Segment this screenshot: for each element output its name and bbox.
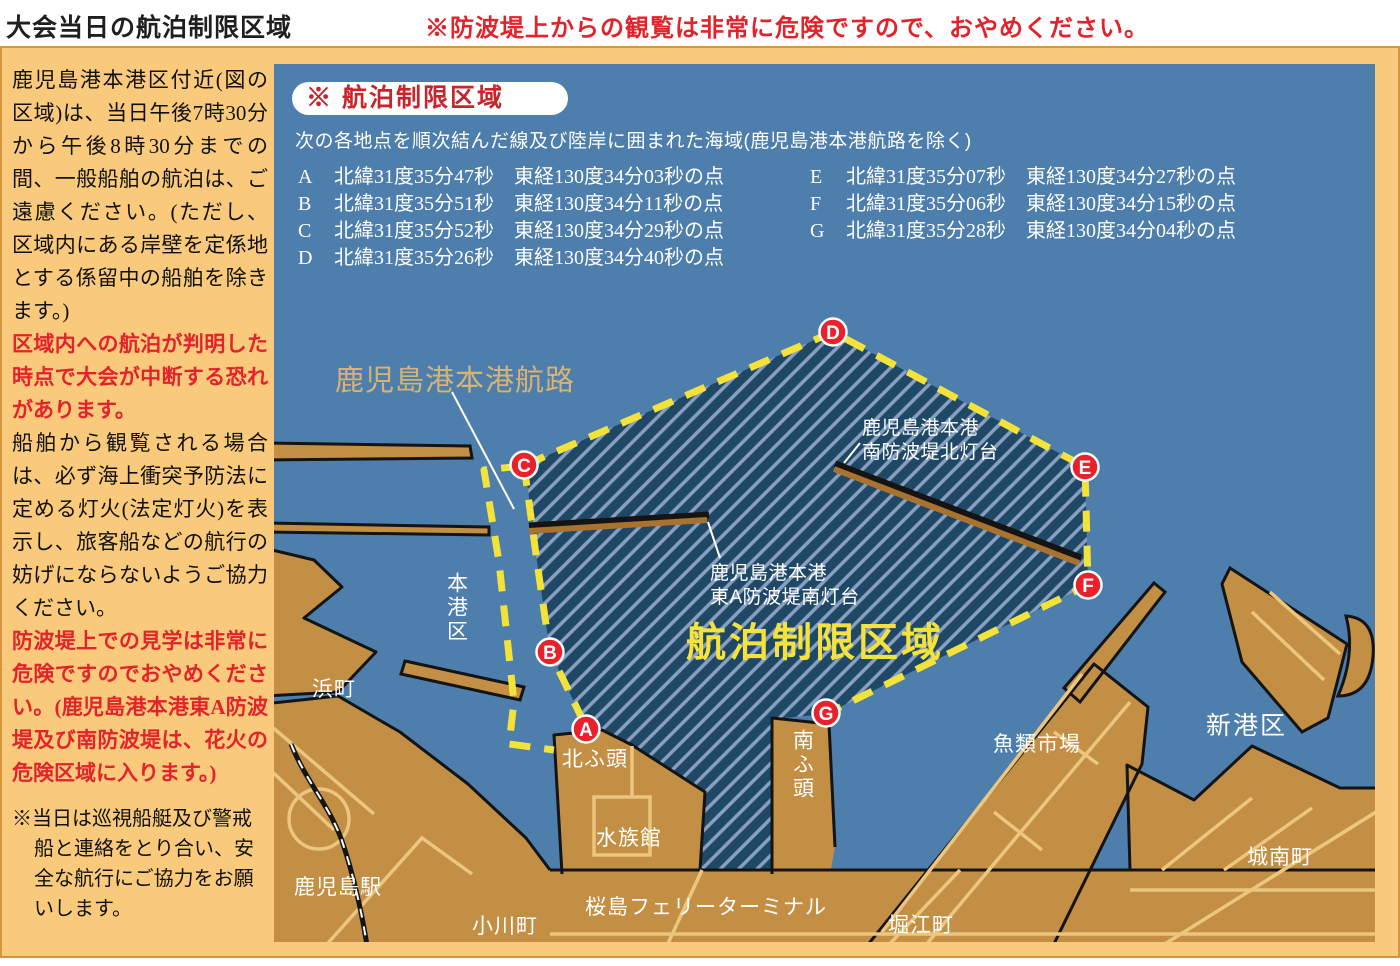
place-ferry-terminal: 桜島フェリーターミナル xyxy=(585,896,827,919)
header-warning-text: ※防波堤上からの観覧は非常に危険ですので、おやめください。 xyxy=(425,8,1149,43)
coordinate-list-right: E北緯31度35分07秒東経130度34分27秒の点 F北緯31度35分06秒東… xyxy=(810,160,1236,241)
notice-paragraph-vessel-lights: 船舶から観覧される場合は、必ず海上衝突予防法に定める灯火(法定灯火)を表示し、旅… xyxy=(12,427,268,625)
lighthouse-east-a-line1: 鹿児島港本港 xyxy=(710,562,827,584)
svg-text:F: F xyxy=(1082,576,1094,597)
notice-paragraph-interruption: 区域内への航泊が判明した時点で大会が中断する恐れがあります。 xyxy=(12,328,268,427)
coord-row-g: G北緯31度35分28秒東経130度34分04秒の点 xyxy=(810,214,1236,241)
place-kagoshima-station: 鹿児島駅 xyxy=(294,876,382,899)
svg-text:G: G xyxy=(819,704,834,725)
lighthouse-east-a-line2: 東A防波堤南灯台 xyxy=(710,586,860,608)
marker-c: C xyxy=(511,452,538,479)
zone-legend-badge: ※ 航泊制限区域 xyxy=(292,82,568,115)
coord-row-d: D北緯31度35分26秒東経130度34分40秒の点 xyxy=(298,241,724,268)
marker-b: B xyxy=(537,639,564,666)
place-jonancho: 城南町 xyxy=(1247,846,1313,869)
place-gyorui-ichiba: 魚類市場 xyxy=(993,733,1081,756)
lighthouse-north-line2: 南防波堤北灯台 xyxy=(862,441,999,463)
svg-text:E: E xyxy=(1079,458,1092,479)
sidebar-notice: 鹿児島港本港区付近(図の区域)は、当日午後7時30分から午後8時30分までの間、… xyxy=(12,64,268,924)
svg-text:C: C xyxy=(517,456,531,477)
marker-g: G xyxy=(813,700,840,727)
coord-row-c: C北緯31度35分52秒東経130度34分29秒の点 xyxy=(298,214,724,241)
channel-label: 鹿児島港本港航路 xyxy=(335,364,575,397)
restricted-zone-label: 航泊制限区域 xyxy=(686,620,944,665)
svg-text:A: A xyxy=(579,720,593,741)
place-horiecho: 堀江町 xyxy=(888,914,954,937)
zone-legend-description: 次の各地点を順次結んだ線及び陸岸に囲まれた海域(鹿児島港本港航路を除く) xyxy=(295,126,972,153)
poster-body: 鹿児島港本港区付近(図の区域)は、当日午後7時30分から午後8時30分までの間、… xyxy=(0,46,1400,958)
coord-row-f: F北緯31度35分06秒東経130度34分15秒の点 xyxy=(810,187,1236,214)
place-suizokukan: 水族館 xyxy=(596,827,662,850)
place-kitafuto: 北ふ頭 xyxy=(562,748,628,771)
svg-text:D: D xyxy=(826,323,840,344)
page-header: 大会当日の航泊制限区域 ※防波堤上からの観覧は非常に危険ですので、おやめください… xyxy=(0,0,1400,46)
svg-text:B: B xyxy=(543,643,557,664)
coord-row-e: E北緯31度35分07秒東経130度34分27秒の点 xyxy=(810,160,1236,187)
marker-f: F xyxy=(1075,572,1102,599)
page-title: 大会当日の航泊制限区域 xyxy=(6,8,292,44)
marker-e: E xyxy=(1072,454,1099,481)
west-spit-1 xyxy=(274,443,472,460)
place-minamifuto: 南ふ頭 xyxy=(791,729,815,801)
notice-paragraph-restriction: 鹿児島港本港区付近(図の区域)は、当日午後7時30分から午後8時30分までの間、… xyxy=(12,64,268,328)
place-ogawacho: 小川町 xyxy=(472,915,538,938)
marker-d: D xyxy=(820,319,847,346)
marker-a: A xyxy=(573,716,600,743)
coord-row-a: A北緯31度35分47秒東経130度34分03秒の点 xyxy=(298,160,724,187)
harbor-map: 鹿児島港本港航路 航泊制限区域 鹿児島港本港 南防波堤北灯台 鹿児島港本港 東A… xyxy=(274,64,1375,942)
place-honkoku: 本港区 xyxy=(445,572,469,644)
notice-paragraph-breakwater-danger: 防波堤上での見学は非常に危険ですのでおやめください。(鹿児島港本港東A防波堤及び… xyxy=(12,625,268,790)
coord-row-b: B北緯31度35分51秒東経130度34分11秒の点 xyxy=(298,187,724,214)
lighthouse-north-line1: 鹿児島港本港 xyxy=(862,417,979,439)
notice-footnote-patrol: ※当日は巡視船艇及び警戒船と連絡をとり合い、安全な航行にご協力をお願いします。 xyxy=(12,804,268,924)
coordinate-list-left: A北緯31度35分47秒東経130度34分03秒の点 B北緯31度35分51秒東… xyxy=(298,160,724,268)
place-hamacho: 浜町 xyxy=(312,678,356,701)
place-shinkoku: 新港区 xyxy=(1206,712,1287,740)
